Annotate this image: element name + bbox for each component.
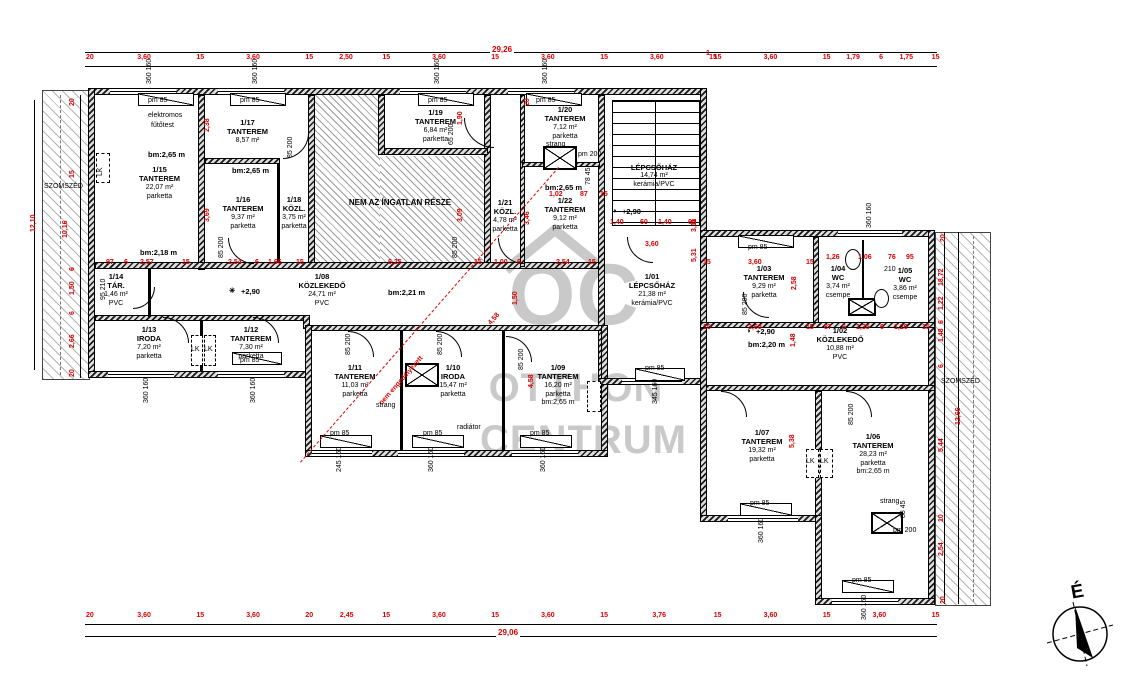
room-rfloor: parketta: [272, 223, 316, 232]
dimension-label: 5,31: [691, 248, 698, 262]
text-annotation: +2,90: [756, 327, 775, 336]
room-label-1-10: 1/10IRODA15,47 m²parketta: [410, 363, 496, 399]
room-rarea: 7,30 m²: [205, 344, 297, 353]
dimension-label: 1: [706, 50, 710, 57]
dimension-label: 15: [182, 259, 190, 266]
room-rid: 1/09: [512, 363, 604, 372]
room-rid: 1/15: [112, 165, 207, 174]
wall: [928, 230, 935, 605]
text-annotation: 360 160: [866, 203, 873, 228]
room-rid: 1/03: [718, 264, 810, 273]
dimension-segment: 1,79: [827, 54, 879, 64]
text-annotation: 85 200: [518, 349, 525, 370]
dimension-label: 6: [69, 267, 76, 271]
text-annotation: 360 160: [146, 59, 153, 84]
text-annotation: fűtőtest: [151, 122, 174, 129]
dimension-label: 1,66: [268, 259, 282, 266]
room-label-1-02: 1/02KÖZLEKEDŐ10,88 m²PVC: [786, 326, 894, 362]
dimension-segment: 3,60: [92, 54, 197, 64]
room-rfloor: PVC: [268, 300, 376, 309]
bottom-dimension-chain: 203,60153,60202,45153,60153,60153,76153,…: [86, 612, 936, 622]
not-property-area: [380, 156, 484, 264]
room-rname: TANTEREM: [388, 117, 483, 126]
text-annotation: pm 85: [530, 430, 549, 437]
text-annotation: pm 85: [240, 97, 259, 104]
text-annotation: 360 160: [428, 447, 435, 472]
room-rarea: 7,20 m²: [108, 344, 190, 353]
text-annotation: 85 200: [742, 294, 749, 315]
dimension-label: 1,50: [512, 291, 519, 305]
room-label-1-12: 1/12TANTEREM7,30 m²parketta: [205, 325, 297, 361]
dimension-line: [85, 66, 937, 67]
text-annotation: 245 160: [336, 447, 343, 472]
text-annotation: pm 85: [423, 430, 442, 437]
text-annotation: 85 200: [848, 404, 855, 425]
room-rid: 1/02: [786, 326, 894, 335]
dimension-segment: 3,60: [827, 612, 932, 622]
wall: [205, 158, 280, 164]
room-rname: WC: [882, 275, 928, 284]
dimension-label: 3,60: [748, 259, 762, 266]
dimension-label: 95: [906, 254, 914, 261]
compass-north-label: É: [1069, 580, 1085, 604]
not-property-label: NEM AZ ÍNGATLAN RÉSZE: [318, 198, 482, 207]
room-rfloor: parketta: [512, 391, 604, 400]
dimension-label: 15: [806, 324, 814, 331]
dimension-segment: 1,75: [881, 54, 932, 64]
room-rarea: 3,74 m²: [816, 283, 860, 292]
room-rarea: 28,23 m²: [822, 451, 924, 460]
dimension-segment: 3,60: [201, 612, 306, 622]
room-rname: TANTEREM: [525, 205, 605, 214]
room-label-1-01: 1/01LÉPCSŐHÁZ21,38 m²kerámia/PVC: [600, 272, 704, 308]
text-annotation: pm 85: [148, 97, 167, 104]
dimension-label: 2,58: [791, 276, 798, 290]
dimension-label: 2,54: [228, 259, 242, 266]
room-label-1-18: 1/18KÖZL.3,75 m²parketta: [272, 195, 316, 231]
room-label-l-pcs-h-z: LÉPCSŐHÁZ14,74 m²kerámia/PVC: [608, 163, 700, 190]
dimension-label: 20: [940, 596, 947, 604]
dimension-label: 15: [600, 191, 608, 198]
text-annotation: radiátor: [457, 424, 481, 431]
room-rname: LÉPCSŐHÁZ: [608, 163, 700, 172]
text-annotation: 345 160: [652, 379, 659, 404]
dimension-label: 4,58: [528, 374, 535, 388]
dimension-label: 20: [524, 98, 531, 106]
room-label-1-08: 1/08KÖZLEKEDŐ24,71 m²PVC: [268, 272, 376, 308]
room-rid: 1/04: [816, 264, 860, 273]
property-boundary-line: [60, 95, 61, 375]
room-rname: TANTEREM: [314, 372, 396, 381]
partition-wall: [400, 331, 403, 450]
room-rname: KÖZLEKEDŐ: [786, 335, 894, 344]
text-annotation: bm:2,21 m: [388, 288, 425, 297]
text-annotation: ◑: [746, 326, 751, 335]
room-rid: 1/21: [484, 198, 526, 207]
text-annotation: 360 160: [758, 518, 765, 543]
dimension-label: 6: [842, 324, 846, 331]
dimension-label: 2,57: [140, 259, 154, 266]
dimension-label: 60: [640, 219, 648, 226]
dimension-segment: 3,60: [718, 54, 823, 64]
room-label-1-20: 1/20TANTEREM7,12 m²parketta: [525, 105, 605, 141]
dimension-segment: 3,60: [496, 612, 601, 622]
dimension-label: 1,02: [549, 191, 563, 198]
text-annotation: 360 160: [250, 378, 257, 403]
window: [838, 230, 902, 237]
text-annotation: 85 200: [218, 237, 225, 258]
text-annotation: 360 160: [542, 59, 549, 84]
text-annotation: pm 85: [645, 365, 664, 372]
dimension-label: 6: [938, 320, 945, 324]
text-annotation: 360 160: [540, 447, 547, 472]
room-rfloor: parketta: [822, 460, 924, 469]
room-rextra: bm:2,65 m: [512, 399, 604, 408]
room-rfloor: parketta: [525, 224, 605, 233]
room-rfloor: PVC: [786, 354, 894, 363]
text-annotation: LK: [204, 346, 213, 353]
text-annotation: +2,90: [241, 287, 260, 296]
room-rarea: 1,46 m²: [88, 291, 144, 300]
room-rname: TANTEREM: [112, 174, 207, 183]
dimension-line: [80, 95, 81, 378]
dimension-label: 12,66: [955, 407, 962, 425]
room-label-1-11: 1/11TANTEREM11,03 m²parketta: [314, 363, 396, 399]
room-rname: IRODA: [108, 334, 190, 343]
room-label-1-17: 1/17TANTEREM8,57 m²: [205, 118, 290, 146]
top-dimension-chain: 203,60153,60152,50153,60153,60153,601511…: [86, 54, 936, 64]
text-annotation: ◑: [612, 206, 617, 215]
dimension-label: 3,09: [457, 208, 464, 222]
text-annotation: LK: [191, 346, 200, 353]
room-rarea: 22,07 m²: [112, 184, 207, 193]
dimension-label: 1,26: [826, 254, 840, 261]
room-rname: TANTEREM: [205, 334, 297, 343]
room-rarea: 6,84 m²: [388, 127, 483, 136]
room-rname: TANTEREM: [822, 441, 924, 450]
text-annotation: pm 200: [578, 151, 601, 158]
dimension-label: 2,66: [69, 334, 76, 348]
room-rarea: 24,71 m²: [268, 291, 376, 300]
dimension-label: 12,10: [30, 214, 37, 232]
room-rid: 1/12: [205, 325, 297, 334]
text-annotation: +2,90: [622, 207, 641, 216]
text-annotation: SZOMSZÉD: [44, 183, 83, 190]
dimension-label: 76: [888, 254, 896, 261]
room-rid: 1/16: [203, 195, 283, 204]
dimension-label: 1,26: [894, 324, 908, 331]
room-rarea: 8,57 m²: [205, 137, 290, 146]
dimension-label: 1,90: [457, 111, 464, 125]
shower-tray: [848, 298, 876, 316]
text-annotation: pm 200: [893, 527, 916, 534]
text-annotation: 360 160: [861, 595, 868, 620]
text-annotation: 85 200: [345, 334, 352, 355]
not-property-area: [315, 95, 380, 265]
room-rname: KÖZL.: [272, 204, 316, 213]
room-label-1-14: 1/14TÁR.1,46 m²PVC: [88, 272, 144, 308]
dimension-label: 20: [69, 98, 76, 106]
room-rarea: 11,03 m²: [314, 382, 396, 391]
text-annotation: 360 160: [434, 59, 441, 84]
dimension-label: 15: [922, 324, 930, 331]
wall: [305, 325, 608, 331]
dimension-segment: 3,60: [92, 612, 197, 622]
text-annotation: elektromos: [148, 112, 182, 119]
room-rname: TANTEREM: [203, 204, 283, 213]
floor-plan: OC OTTHON CENTRUM: [0, 0, 1129, 680]
wall: [308, 95, 315, 269]
dimension-segment: 3,60: [605, 54, 710, 64]
room-rfloor: parketta: [108, 353, 190, 362]
room-rarea: 21,38 m²: [600, 291, 704, 300]
dimension-label: 2,54: [556, 259, 570, 266]
room-label-1-06: 1/06TANTEREM28,23 m²parkettabm:2,65 m: [822, 432, 924, 477]
room-rfloor: parketta: [314, 391, 396, 400]
room-rid: 1/14: [88, 272, 144, 281]
room-label-1-13: 1/13IRODA7,20 m²parketta: [108, 325, 190, 361]
dimension-label: 15: [703, 324, 711, 331]
dimension-label: 1,40: [658, 219, 672, 226]
wall: [378, 95, 385, 155]
text-annotation: SZOMSZÉD: [941, 378, 980, 385]
dimension-label: 3,11: [691, 219, 698, 232]
room-rfloor: parketta: [716, 456, 808, 465]
dimension-label: 1,22: [938, 296, 945, 310]
text-annotation: 95 210: [100, 279, 107, 300]
room-rid: 1/08: [268, 272, 376, 281]
room-label-1-21: 1/21KÖZL.4,78 m²parketta: [484, 198, 526, 234]
dimension-label: 6: [938, 364, 945, 368]
wall: [700, 328, 707, 522]
bottom-total-dimension: 29,06: [496, 628, 520, 637]
dimension-label: 10: [938, 514, 945, 522]
dimension-segment: 15: [932, 612, 936, 622]
dimension-label: 3,69: [204, 208, 211, 222]
dimension-label: 6: [255, 259, 259, 266]
text-annotation: pm 85: [852, 577, 871, 584]
wall: [305, 325, 312, 457]
text-annotation: bm:2,65 m: [545, 183, 582, 192]
dimension-label: 15: [296, 259, 304, 266]
room-rarea: 15,47 m²: [410, 382, 496, 391]
text-annotation: 85 200: [287, 137, 294, 158]
shaft-box: [543, 146, 577, 170]
room-rname: IRODA: [410, 372, 496, 381]
property-boundary-line: [973, 236, 974, 602]
dimension-segment: 3,60: [718, 612, 823, 622]
dimension-label: 5,44: [938, 438, 945, 452]
dimension-label: 6: [124, 259, 128, 266]
dimension-label: 87: [824, 324, 832, 331]
dimension-label: 1,06: [858, 254, 872, 261]
dimension-label: 3,46: [524, 211, 531, 225]
room-rarea: 19,32 m²: [716, 447, 808, 456]
dimension-label: 20: [940, 234, 947, 242]
room-rarea: 3,86 m²: [882, 285, 928, 294]
text-annotation: ✳: [229, 286, 235, 295]
room-rarea: 3,75 m²: [272, 214, 316, 223]
door-arc: [721, 391, 747, 417]
room-rarea: 14,74 m²: [608, 172, 700, 181]
text-annotation: pm 85: [330, 430, 349, 437]
text-annotation: pm 85: [748, 244, 767, 251]
room-rfloor: csempe: [816, 292, 860, 301]
text-annotation: LK: [97, 167, 104, 176]
dimension-label: 15: [703, 259, 711, 266]
dimension-label: 3,60: [645, 241, 659, 248]
dimension-label: 6: [517, 259, 521, 266]
text-annotation: pm 85: [536, 97, 555, 104]
dimension-label: 15: [806, 259, 814, 266]
text-annotation: 65 200: [448, 124, 455, 145]
text-annotation: pm 85: [240, 357, 259, 364]
room-rname: TANTEREM: [525, 114, 605, 123]
dimension-label: 1,40: [610, 219, 624, 226]
dimension-segment: 3,60: [387, 612, 492, 622]
text-annotation: pm 85: [750, 500, 769, 507]
dimension-label: 2,38: [204, 118, 211, 132]
partition-wall: [862, 240, 864, 302]
text-annotation: bm:2,20 m: [748, 340, 785, 349]
room-rfloor: parketta: [525, 133, 605, 142]
room-rid: 1/19: [388, 108, 483, 117]
room-rfloor: parketta: [718, 292, 810, 301]
room-rfloor: parketta: [484, 226, 526, 235]
room-rfloor: kerámia/PVC: [600, 300, 704, 309]
room-rarea: 7,12 m²: [525, 124, 605, 133]
text-annotation: bm:2,65 m: [232, 166, 269, 175]
dimension-segment: 15: [932, 54, 936, 64]
room-rarea: 4,78 m²: [484, 217, 526, 226]
room-rfloor: parketta: [410, 391, 496, 400]
text-annotation: 85 200: [437, 334, 444, 355]
dimension-label: 2,54: [938, 542, 945, 556]
compass-icon: É: [1035, 572, 1125, 676]
room-label-1-22: 1/22TANTEREM9,12 m²parketta: [525, 196, 605, 232]
room-rname: WC: [816, 273, 860, 282]
room-label-1-04: 1/04WC3,74 m²csempe: [816, 264, 860, 300]
dimension-label: 6,25: [388, 259, 402, 266]
room-rname: KÖZLEKEDŐ: [268, 281, 376, 290]
text-annotation: strang: [546, 141, 565, 148]
partition-wall: [502, 331, 505, 450]
dimension-label: 5,38: [789, 434, 796, 448]
top-total-dimension: 29,26: [490, 45, 514, 54]
text-annotation: 88 45: [900, 500, 907, 518]
room-rname: LÉPCSŐHÁZ: [600, 281, 704, 290]
room-rarea: 9,12 m²: [525, 215, 605, 224]
room-rid: 1/22: [525, 196, 605, 205]
dimension-label: 15: [588, 259, 596, 266]
text-annotation: bm:2,65 m: [148, 150, 185, 159]
room-rname: TANTEREM: [512, 372, 604, 381]
room-rname: TÁR.: [88, 281, 144, 290]
dimension-label: 1,50: [69, 281, 76, 295]
dimension-label: 1,48: [790, 333, 797, 347]
room-rid: 1/20: [525, 105, 605, 114]
dimension-segment: 2,50: [310, 54, 383, 64]
dimension-label: 87: [580, 191, 588, 198]
room-rfloor: parketta: [112, 193, 207, 202]
text-annotation: LK: [820, 458, 829, 465]
dimension-label: 1,00: [494, 259, 508, 266]
dimension-label: 1,48: [938, 328, 945, 342]
dimension-label: 1,35: [856, 324, 870, 331]
room-rname: TANTEREM: [205, 127, 290, 136]
room-rfloor: csempe: [882, 294, 928, 303]
text-annotation: 78 45: [585, 167, 592, 185]
window: [108, 371, 174, 378]
room-rarea: 9,37 m²: [203, 214, 283, 223]
dimension-line: [34, 100, 35, 370]
text-annotation: bm:2,18 m: [140, 248, 177, 257]
dimension-label: 6: [69, 311, 76, 315]
room-rfloor: PVC: [88, 300, 144, 309]
room-rid: 1/10: [410, 363, 496, 372]
dimension-label: 18,72: [938, 268, 945, 286]
room-rfloor: parketta: [203, 223, 283, 232]
room-rextra: bm:2,65 m: [822, 468, 924, 477]
room-label-1-09: 1/09TANTEREM16,20 m²parkettabm:2,65 m: [512, 363, 604, 408]
text-annotation: strang: [880, 498, 899, 505]
room-rid: 1/13: [108, 325, 190, 334]
wall: [378, 148, 488, 155]
dimension-line: [85, 624, 937, 625]
room-rid: 1/06: [822, 432, 924, 441]
text-annotation: 360 160: [143, 378, 150, 403]
dimension-segment: 2,45: [311, 612, 382, 622]
room-label-1-15: 1/15TANTEREM22,07 m²parketta: [112, 165, 207, 201]
text-annotation: strang: [376, 402, 395, 409]
text-annotation: 360 160: [252, 59, 259, 84]
room-rid: 1/01: [600, 272, 704, 281]
room-label-1-19: 1/19TANTEREM6,84 m²parketta: [388, 108, 483, 144]
text-annotation: 85 200: [452, 237, 459, 258]
text-annotation: pm 85: [428, 97, 447, 104]
room-rid: 1/17: [205, 118, 290, 127]
dimension-segment: 3,76: [605, 612, 714, 622]
text-annotation: LK: [806, 458, 815, 465]
room-rname: KÖZL.: [484, 207, 526, 216]
dimension-label: 6: [880, 324, 884, 331]
room-rfloor: kerámia/PVC: [608, 181, 700, 190]
dimension-label: 10,16: [62, 220, 69, 238]
room-rid: 1/18: [272, 195, 316, 204]
text-annotation: 210: [884, 266, 896, 273]
room-rarea: 10,88 m²: [786, 345, 894, 354]
room-label-1-16: 1/16TANTEREM9,37 m²parketta: [203, 195, 283, 231]
dimension-label: 15: [474, 259, 482, 266]
room-rid: 1/11: [314, 363, 396, 372]
dimension-label: 15: [69, 170, 76, 178]
wall: [815, 515, 822, 604]
wall: [88, 88, 95, 378]
room-rfloor: parketta: [388, 136, 483, 145]
dimension-label: 20: [69, 369, 76, 377]
room-rarea: 16,20 m²: [512, 382, 604, 391]
dimension-label: 97: [106, 259, 114, 266]
